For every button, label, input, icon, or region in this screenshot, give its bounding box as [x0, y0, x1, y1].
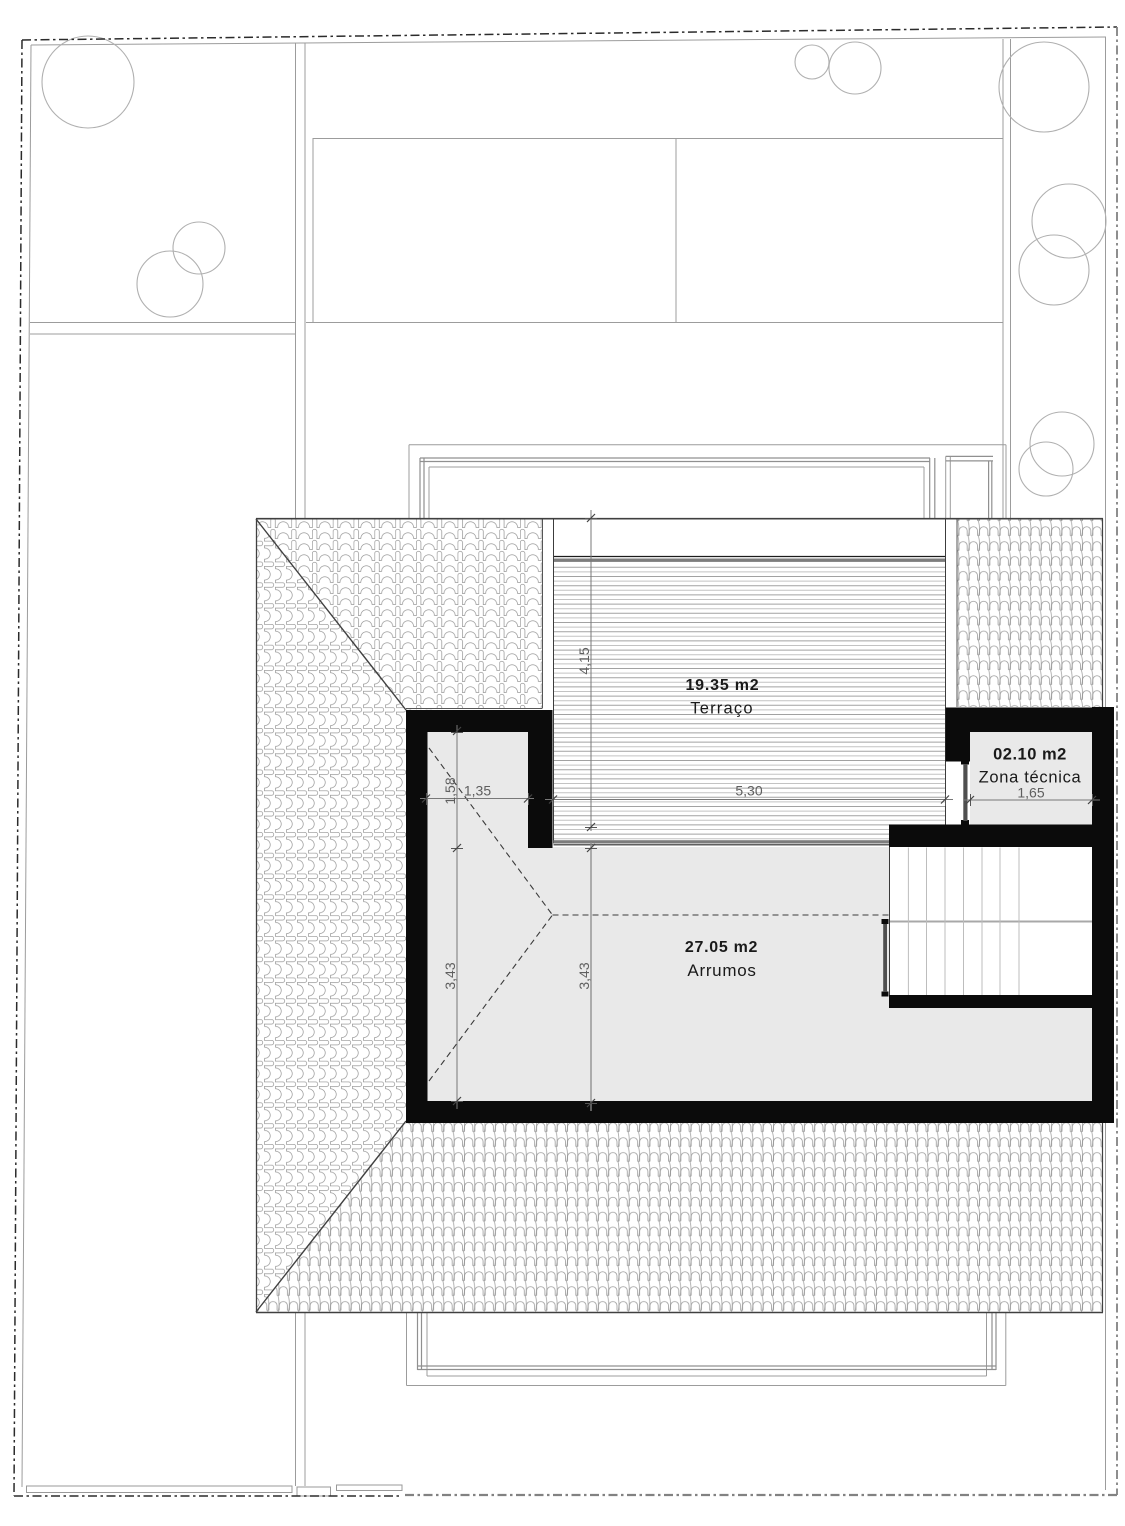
- svg-text:3,43: 3,43: [442, 962, 458, 989]
- svg-text:Terraço: Terraço: [690, 700, 753, 718]
- svg-text:1,65: 1,65: [1017, 785, 1044, 801]
- svg-text:5,30: 5,30: [735, 783, 762, 799]
- svg-text:Zona técnica: Zona técnica: [979, 769, 1082, 787]
- svg-text:1,35: 1,35: [464, 783, 491, 799]
- svg-text:Arrumos: Arrumos: [687, 961, 756, 980]
- svg-text:3,43: 3,43: [576, 962, 592, 989]
- svg-text:4,15: 4,15: [576, 647, 592, 674]
- svg-text:19.35 m2: 19.35 m2: [685, 677, 759, 694]
- svg-text:1,58: 1,58: [442, 777, 458, 804]
- svg-text:27.05 m2: 27.05 m2: [685, 939, 758, 956]
- svg-text:02.10 m2: 02.10 m2: [993, 746, 1067, 764]
